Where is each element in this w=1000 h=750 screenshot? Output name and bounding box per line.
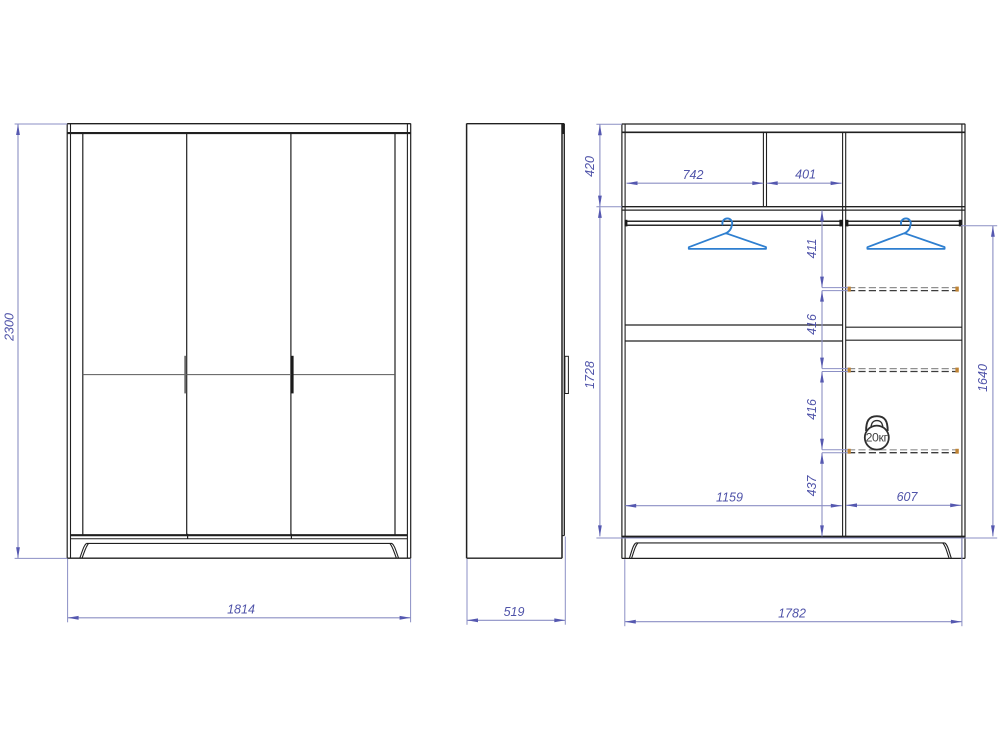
svg-text:1159: 1159	[716, 490, 743, 504]
svg-text:20кг: 20кг	[866, 431, 889, 445]
svg-text:2300: 2300	[2, 313, 16, 342]
svg-text:411: 411	[805, 239, 819, 259]
svg-text:416: 416	[805, 399, 819, 420]
svg-text:401: 401	[795, 168, 816, 182]
svg-text:1782: 1782	[778, 606, 806, 620]
svg-text:607: 607	[897, 490, 919, 504]
svg-text:742: 742	[683, 168, 704, 182]
svg-text:420: 420	[583, 156, 597, 177]
svg-text:416: 416	[805, 314, 819, 335]
svg-text:1814: 1814	[227, 603, 255, 617]
svg-text:437: 437	[805, 475, 819, 497]
svg-text:519: 519	[504, 605, 525, 619]
svg-text:1640: 1640	[976, 364, 990, 392]
svg-text:1728: 1728	[583, 361, 597, 389]
